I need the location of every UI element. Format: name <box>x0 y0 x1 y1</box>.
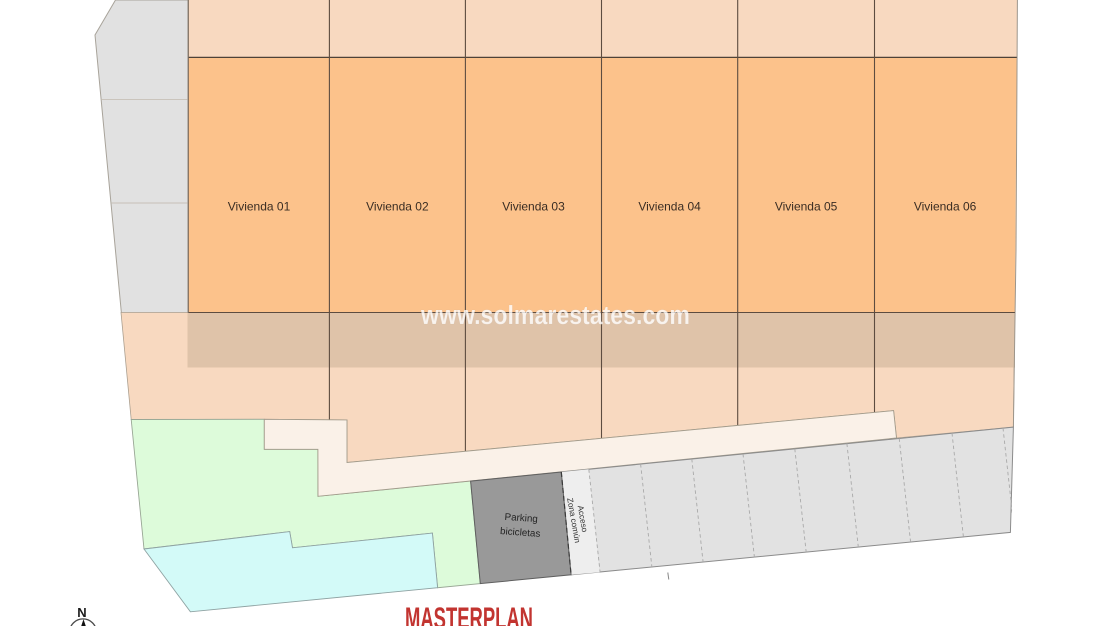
svg-text:Vivienda 01: Vivienda 01 <box>228 200 291 214</box>
svg-text:Vivienda 02: Vivienda 02 <box>366 200 429 214</box>
svg-text:Parking: Parking <box>504 512 538 525</box>
svg-text:Vivienda 06: Vivienda 06 <box>914 200 977 214</box>
svg-text:N: N <box>77 605 86 620</box>
svg-text:Vivienda 05: Vivienda 05 <box>775 200 838 214</box>
svg-text:www.solmarestates.com: www.solmarestates.com <box>420 302 690 330</box>
svg-text:MASTERPLAN: MASTERPLAN <box>405 602 533 626</box>
svg-text:Vivienda 04: Vivienda 04 <box>638 200 701 214</box>
svg-text:Vivienda 03: Vivienda 03 <box>502 200 565 214</box>
